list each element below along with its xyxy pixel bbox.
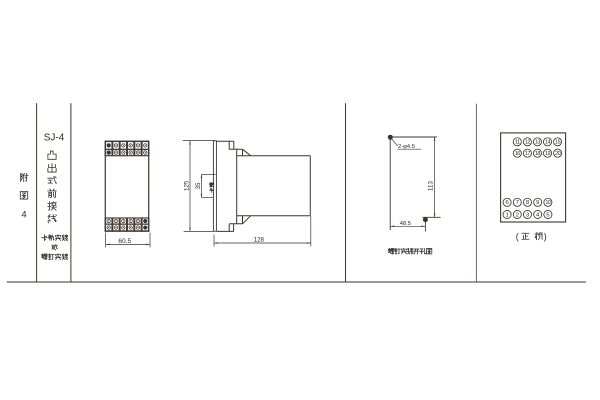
- svg-text:8: 8: [526, 200, 530, 206]
- svg-text:2: 2: [516, 212, 519, 218]
- svg-text:60.5: 60.5: [118, 238, 131, 245]
- svg-text:SJ-4: SJ-4: [44, 133, 65, 144]
- svg-text:48.5: 48.5: [400, 221, 411, 227]
- svg-text:128: 128: [254, 237, 265, 244]
- svg-text:19: 19: [545, 151, 551, 157]
- svg-text:(: (: [516, 231, 519, 241]
- svg-text:): ): [544, 231, 547, 241]
- svg-text:16: 16: [515, 151, 521, 157]
- svg-text:4: 4: [536, 212, 540, 218]
- svg-text:14: 14: [545, 140, 551, 146]
- svg-text:125: 125: [183, 180, 190, 191]
- svg-text:10: 10: [545, 200, 551, 206]
- svg-text:11: 11: [515, 140, 520, 146]
- svg-text:4: 4: [21, 210, 26, 221]
- svg-text:35: 35: [196, 182, 202, 189]
- svg-text:3: 3: [526, 212, 530, 218]
- svg-text:2-φ4.5: 2-φ4.5: [398, 144, 415, 150]
- svg-text:5: 5: [546, 212, 550, 218]
- svg-text:113: 113: [428, 181, 435, 191]
- svg-text:12: 12: [525, 140, 531, 146]
- svg-text:6: 6: [505, 200, 509, 206]
- svg-text:7: 7: [516, 200, 519, 206]
- svg-text:17: 17: [525, 151, 531, 157]
- svg-text:18: 18: [535, 151, 541, 157]
- svg-text:15: 15: [555, 140, 561, 146]
- svg-text:13: 13: [535, 140, 541, 146]
- svg-text:9: 9: [536, 200, 539, 206]
- svg-text:1: 1: [505, 212, 508, 218]
- svg-text:20: 20: [555, 151, 561, 157]
